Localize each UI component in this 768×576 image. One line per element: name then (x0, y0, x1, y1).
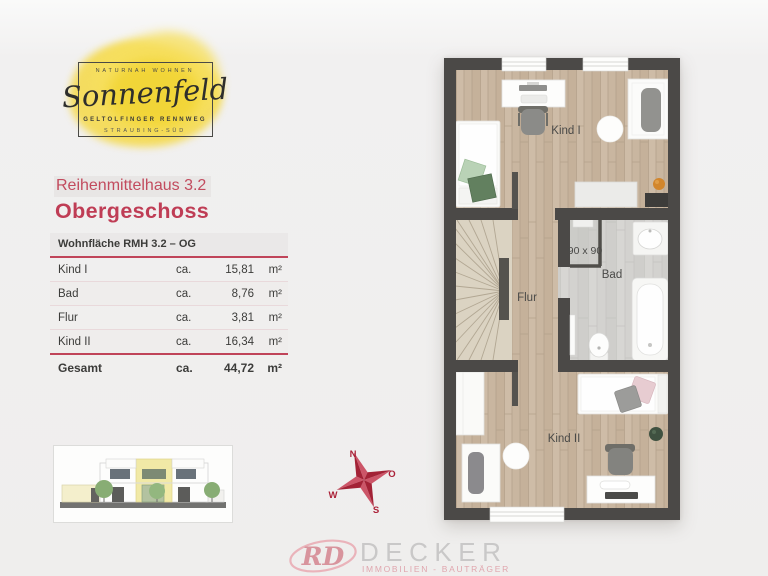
staircase (455, 219, 512, 361)
monogram-letters: RD (301, 542, 345, 571)
room-name: Flur (50, 312, 176, 324)
area-value: 3,81 (208, 312, 254, 324)
area-unit: m² (254, 336, 288, 348)
wardrobe-kind2 (456, 372, 484, 435)
compass-south-label: S (373, 505, 379, 516)
orange-ball (653, 178, 665, 190)
logo-district: STRAUBING-SÜD (58, 128, 232, 134)
stair-spine-wall (499, 258, 509, 320)
room-label-kind2: Kind II (548, 433, 581, 445)
approx-label: ca. (176, 264, 208, 276)
open-wardrobe-kind2 (462, 444, 500, 502)
project-subtitle: Reihenmittelhaus 3.2 (54, 176, 211, 197)
room-label-flur: Flur (517, 292, 537, 304)
room-name: Kind I (50, 264, 176, 276)
round-rug-kind1 (597, 116, 623, 142)
green-ball (649, 427, 663, 441)
approx-label: ca. (176, 361, 208, 375)
building-elevation-thumbnail (53, 445, 233, 523)
sonnenfeld-logo: NATURNAH WOHNEN Sonnenfeld GELTOLFINGER … (58, 32, 238, 160)
approx-label: ca. (176, 336, 208, 348)
elevation-drawing (54, 446, 232, 522)
company-tagline: IMMOBILIEN - BAUTRÄGER (362, 564, 510, 574)
keyboard (521, 95, 547, 103)
dresser-kind1 (575, 182, 637, 207)
wardrobe-kind1 (628, 79, 668, 139)
washbasin (633, 222, 668, 255)
area-table: Wohnfläche RMH 3.2 – OG Kind I ca. 15,81… (50, 233, 288, 380)
desk-kind2 (587, 476, 655, 503)
area-table-header: Wohnfläche RMH 3.2 – OG (50, 233, 288, 258)
compass-north-label: N (350, 449, 357, 460)
pillow-green-dark (468, 174, 496, 202)
logo-street: GELTOLFINGER RENNWEG (58, 117, 232, 123)
table-total-row: Gesamt ca. 44,72 m² (50, 353, 288, 380)
decker-monogram-icon: RD (286, 536, 360, 576)
monitor (519, 85, 547, 91)
table-row: Flur ca. 3,81 m² (50, 306, 288, 330)
approx-label: ca. (176, 288, 208, 300)
door-leaf-bad (570, 315, 575, 355)
area-value: 16,34 (208, 336, 254, 348)
round-rug-kind2 (503, 443, 529, 469)
toilet (589, 333, 609, 361)
area-unit: m² (254, 312, 288, 324)
total-value: 44,72 (208, 361, 254, 375)
area-value: 15,81 (208, 264, 254, 276)
dark-shelf (645, 193, 668, 207)
table-row: Kind II ca. 16,34 m² (50, 330, 288, 353)
compass-west-label: W (329, 490, 338, 501)
chair-kind1 (518, 106, 548, 135)
total-label: Gesamt (50, 361, 176, 375)
area-unit: m² (254, 288, 288, 300)
desk-kind1 (502, 80, 565, 107)
shower-dimension-label: 90 x 90 (568, 245, 603, 257)
table-row: Kind I ca. 15,81 m² (50, 258, 288, 282)
bathtub (632, 278, 668, 361)
chair-kind2 (605, 444, 635, 475)
area-value: 8,76 (208, 288, 254, 300)
room-name: Kind II (50, 336, 176, 348)
room-name: Bad (50, 288, 176, 300)
laptop (605, 492, 638, 499)
floorplan: Kind I 90 x 90 Bad Flur Kind II (440, 54, 688, 526)
area-unit: m² (254, 361, 288, 375)
bed-kind2 (578, 374, 668, 414)
page-title: Obergeschoss (55, 199, 209, 224)
room-label-kind1: Kind I (551, 125, 580, 137)
door-leaf-kind1 (512, 172, 518, 209)
approx-label: ca. (176, 312, 208, 324)
bed-kind1 (456, 121, 500, 207)
compass-east-label: O (388, 469, 395, 480)
flyer-page: NATURNAH WOHNEN Sonnenfeld GELTOLFINGER … (0, 0, 768, 576)
hanging-clothes (641, 88, 661, 132)
area-unit: m² (254, 264, 288, 276)
door-leaf-kind2 (512, 372, 518, 406)
table-row: Bad ca. 8,76 m² (50, 282, 288, 306)
room-label-bad: Bad (602, 269, 622, 281)
compass-rose-icon: N O S W (322, 438, 406, 522)
hanging-clothes (468, 452, 484, 494)
